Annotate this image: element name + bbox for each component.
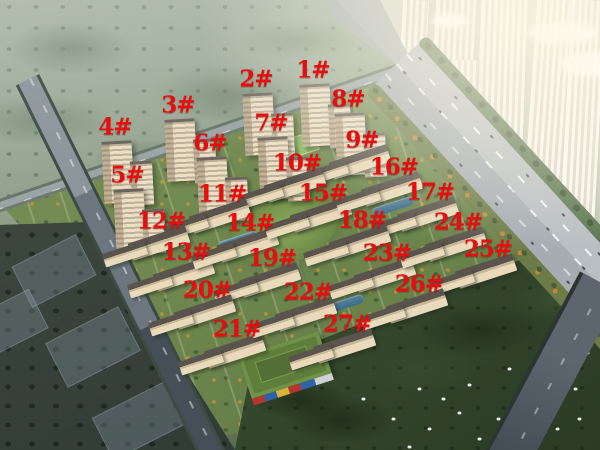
building-label-6: 6# — [193, 132, 226, 155]
building-label-1: 1# — [296, 59, 329, 82]
aerial-site-plan: 1#2#3#4#5#6#7#8#9#10#11#12#13#14#15#16#1… — [0, 0, 600, 450]
building-label-12: 12# — [137, 210, 185, 233]
building-label-21: 21# — [213, 318, 261, 341]
building-label-23: 23# — [363, 242, 411, 265]
building-label-7: 7# — [254, 112, 287, 135]
building-label-27: 27# — [323, 313, 371, 336]
building-label-10: 10# — [273, 152, 321, 175]
building-label-22: 22# — [284, 281, 332, 304]
building-label-18: 18# — [338, 209, 386, 232]
building-label-5: 5# — [110, 164, 143, 187]
building-label-14: 14# — [226, 212, 274, 235]
building-label-15: 15# — [299, 182, 347, 205]
building-label-3: 3# — [161, 94, 194, 117]
building-label-13: 13# — [162, 241, 210, 264]
building-label-4: 4# — [98, 116, 131, 139]
building-label-2: 2# — [239, 68, 272, 91]
building-label-26: 26# — [395, 273, 443, 296]
building-label-17: 17# — [406, 181, 454, 204]
building-label-9: 9# — [345, 129, 378, 152]
building-label-25: 25# — [464, 238, 512, 261]
building-label-24: 24# — [434, 211, 482, 234]
building-label-16: 16# — [370, 156, 418, 179]
building-label-8: 8# — [331, 88, 364, 111]
building-labels-layer: 1#2#3#4#5#6#7#8#9#10#11#12#13#14#15#16#1… — [0, 0, 600, 450]
building-label-20: 20# — [183, 279, 231, 302]
building-label-11: 11# — [198, 183, 246, 206]
building-label-19: 19# — [248, 247, 296, 270]
